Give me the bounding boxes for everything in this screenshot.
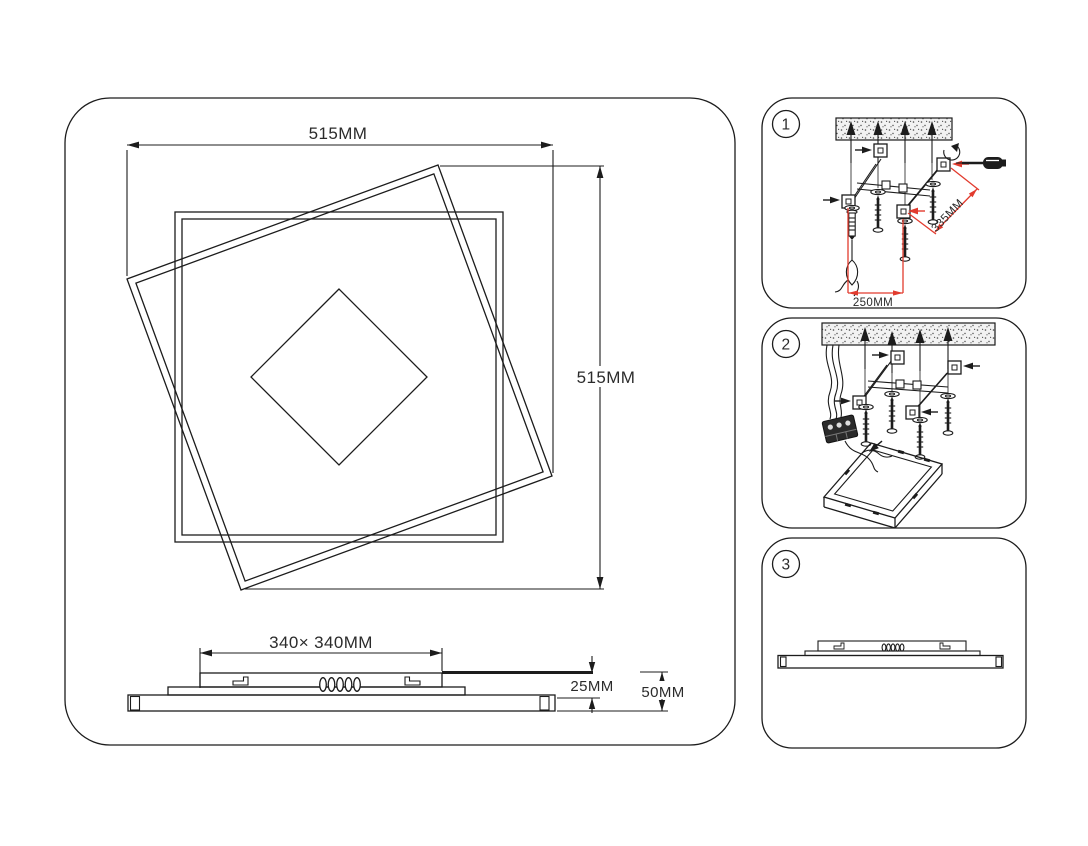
pointer-arrow-icon <box>834 398 851 405</box>
base-plate <box>778 656 1003 669</box>
washer-icon <box>941 393 955 398</box>
dim-label-right-515: 515MM <box>577 368 636 387</box>
pointer-arrow-icon <box>921 409 938 416</box>
dim-label-top-515: 515MM <box>309 124 368 143</box>
diagram-svg: 515MM 515MM 340× 340MM <box>0 0 1088 846</box>
pointer-arrow-icon <box>872 352 889 359</box>
fastener-hardware <box>845 181 940 261</box>
mid-plate <box>168 687 465 695</box>
step-3-border <box>762 538 1026 748</box>
connector-coil <box>320 678 361 692</box>
washer-icon <box>913 417 927 422</box>
screw-icon <box>873 195 883 232</box>
screw-icon <box>861 409 871 446</box>
dimension-25mm: 25MM <box>557 656 614 713</box>
mid-plate <box>805 651 980 656</box>
step-2-border <box>762 318 1026 528</box>
panel-frame-straight-square <box>175 212 503 542</box>
dim-label-335: 335MM <box>930 197 967 234</box>
spring-clip-left <box>834 643 844 649</box>
step-1-number: 1 <box>781 117 790 134</box>
step-2-number: 2 <box>781 337 790 354</box>
washer-icon <box>885 391 899 396</box>
light-panel-frame <box>824 438 942 528</box>
pointer-arrow-icon <box>823 197 840 204</box>
terminal-block <box>822 415 858 444</box>
assembled-panel-side-view <box>778 641 1003 668</box>
dim-label-25: 25MM <box>570 678 613 695</box>
washer-icon <box>871 189 885 194</box>
washer-icon <box>898 218 912 223</box>
main-panel-border <box>65 98 735 745</box>
main-diagram-panel: 515MM 515MM 340× 340MM <box>65 98 735 745</box>
step-2-panel: 2 <box>762 318 1026 528</box>
dimension-top-width: 515MM <box>127 124 553 473</box>
center-diamond <box>251 289 427 465</box>
panel-frame-rotated-square <box>127 165 552 590</box>
dimension-335mm: 335MM <box>908 168 979 235</box>
spring-clip-right <box>940 643 950 649</box>
hanging-cord <box>835 240 859 296</box>
supply-wires <box>826 345 843 419</box>
dimension-250mm: 250MM <box>848 208 903 309</box>
step-3-number: 3 <box>781 557 790 574</box>
washer-icon <box>926 181 940 186</box>
dimension-right-height: 515MM <box>245 166 636 589</box>
screw-icon <box>900 224 910 261</box>
base-plate <box>128 695 555 711</box>
screw-icon <box>943 398 953 435</box>
spring-clip-right <box>405 677 420 685</box>
cross-bar <box>857 181 930 196</box>
step-1-panel: 1 <box>762 98 1026 309</box>
spring-clip-left <box>233 677 248 685</box>
step-3-panel: 3 <box>762 538 1026 748</box>
installation-diagram-page: 515MM 515MM 340× 340MM <box>0 0 1088 846</box>
dim-label-50: 50MM <box>641 684 684 701</box>
dim-label-250: 250MM <box>853 297 893 309</box>
screwdriver-icon <box>944 143 1006 169</box>
dim-label-340: 340× 340MM <box>269 633 373 652</box>
screw-icon <box>915 422 925 459</box>
ceiling-surface <box>822 323 995 345</box>
connector-coil <box>882 644 904 651</box>
screw-icon <box>887 396 897 433</box>
pointer-arrow-icon <box>963 363 980 370</box>
cross-bar <box>868 380 948 393</box>
side-profile-view <box>128 673 593 712</box>
washer-icon <box>859 404 873 409</box>
pointer-arrow-icon <box>855 147 872 154</box>
mounting-bracket-left <box>842 144 887 208</box>
